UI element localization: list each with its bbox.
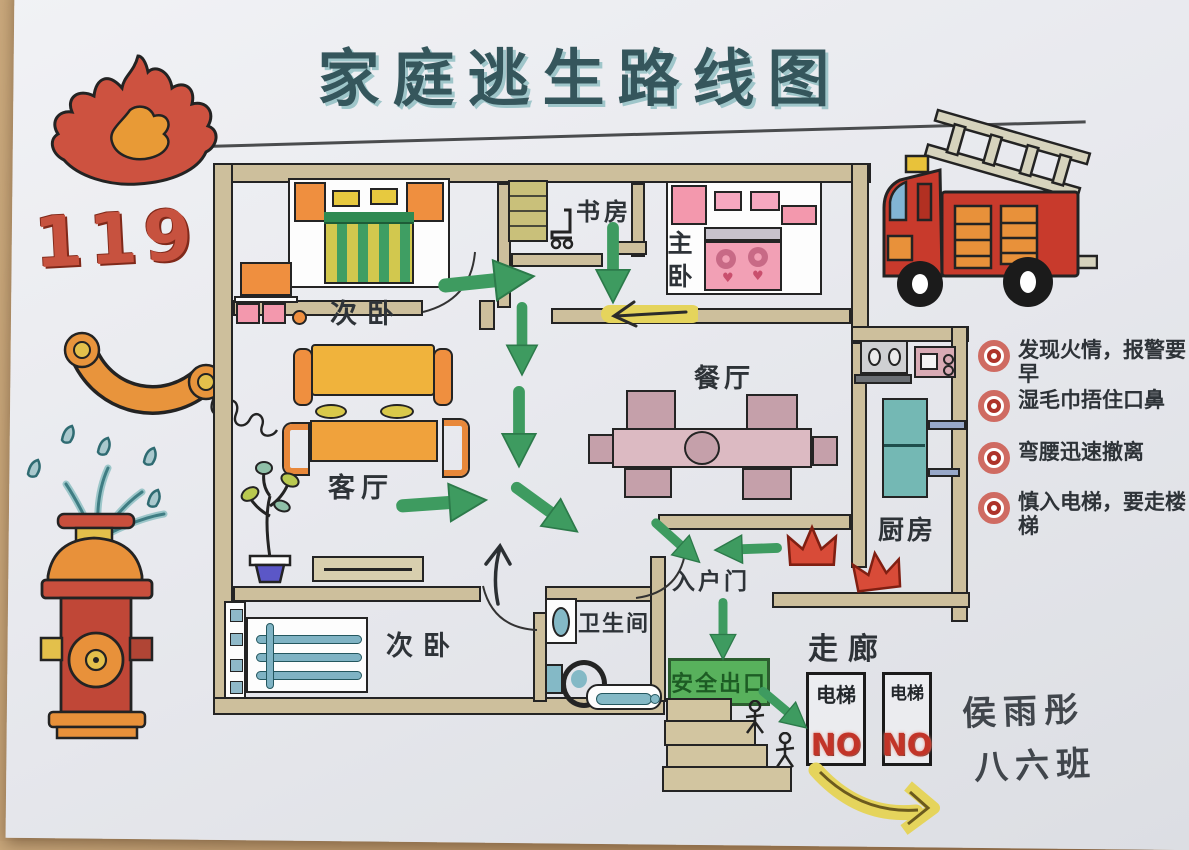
- dining-set-icon: [588, 390, 840, 502]
- tv-stand-line: [324, 568, 412, 571]
- headboard-square: [230, 633, 243, 646]
- drawer: [236, 303, 260, 324]
- headboard: [224, 601, 246, 699]
- headboard-square: [230, 609, 243, 622]
- flower: [748, 247, 768, 267]
- escape-arrow-up-thin: [470, 538, 524, 610]
- drawer: [262, 303, 286, 324]
- fridge-handle: [928, 468, 960, 477]
- fire-crown-icon: [784, 524, 840, 568]
- room-label-master-bedroom: 主卧: [660, 230, 696, 296]
- room-label-study: 书房: [576, 192, 632, 227]
- signature-name: 侯雨彤: [961, 682, 1086, 735]
- chair: [588, 434, 614, 464]
- page-title: 家庭逃生路线图: [240, 28, 920, 118]
- sofa-icon: [293, 344, 453, 406]
- safety-tip-text: 慎入电梯，要走楼梯: [1018, 490, 1188, 538]
- toilet-tank: [545, 664, 563, 694]
- pillow: [750, 191, 780, 211]
- yellow-arrow-curve: [804, 760, 944, 840]
- pillow: [370, 188, 398, 205]
- desk-chair-icon: [544, 208, 580, 250]
- escape-arrow-down: [700, 598, 746, 662]
- microwave-icon: [914, 346, 956, 378]
- fridge-icon: [882, 398, 928, 498]
- escape-arrow-right: [394, 475, 491, 531]
- sink-icon: [545, 598, 577, 644]
- emergency-number-119: 119: [32, 194, 200, 284]
- room-label-kitchen: 厨房: [878, 510, 936, 547]
- fire-crown-icon: [847, 545, 906, 597]
- flower: [716, 249, 736, 269]
- signature-class: 八六班: [973, 736, 1098, 789]
- elevator-no-label: NO: [811, 731, 862, 761]
- cushion: [315, 404, 347, 419]
- pillow-panel: [294, 182, 326, 222]
- bullet-ring-icon: [978, 442, 1010, 474]
- wall: [233, 586, 481, 602]
- heart: ♥: [722, 271, 734, 286]
- dresser-shelf: [234, 296, 298, 303]
- dresser-icon: [240, 262, 292, 296]
- tub-inner: [596, 693, 652, 705]
- stair-step: [666, 744, 768, 768]
- fire-truck-icon: [876, 104, 1098, 316]
- chair: [812, 436, 838, 466]
- bathtub-icon: [586, 684, 662, 710]
- pillow-panel: [781, 205, 817, 225]
- tv-stand-icon: [312, 556, 424, 582]
- heart: ♥: [752, 269, 764, 284]
- room-label-corridor: 走廊: [808, 624, 888, 668]
- potted-plant-icon: [238, 458, 302, 584]
- microwave-knob: [943, 365, 954, 376]
- room-label-entrance: 入户门: [672, 562, 750, 596]
- bullet-ring-icon: [978, 492, 1010, 524]
- escape-arrow-down: [498, 302, 546, 378]
- microwave-window: [920, 353, 938, 370]
- stair-step: [666, 698, 732, 722]
- microwave-knob: [943, 354, 954, 365]
- headboard-square: [230, 659, 243, 672]
- elevator-box: 电梯 NO: [882, 672, 932, 766]
- room-label-living-room: 客厅: [328, 466, 394, 505]
- bed-icon: [224, 601, 370, 699]
- yellow-arrow-left: [596, 292, 698, 336]
- elevator-label: 电梯: [816, 679, 856, 708]
- fridge-handle: [928, 420, 966, 430]
- chair: [746, 394, 798, 430]
- elevator-label: 电梯: [890, 679, 924, 704]
- safety-tips-list: 发现火情，报警要早 湿毛巾捂住口鼻 弯腰迅速撤离 慎入电梯，要走楼梯: [978, 326, 1189, 592]
- sofa-body: [311, 344, 435, 396]
- escape-arrow-down: [492, 386, 546, 470]
- bed-icon: [288, 178, 450, 288]
- fire-flame-icon: [38, 48, 238, 193]
- bullet-ring-icon: [978, 390, 1010, 422]
- ball-icon: [292, 310, 307, 325]
- room-label-dining-room: 餐厅: [694, 358, 754, 395]
- wall: [851, 163, 869, 338]
- tub-knob: [650, 694, 660, 704]
- sink-basin: [552, 607, 570, 637]
- stove-base: [854, 374, 912, 384]
- coffee-table-icon: [310, 420, 438, 462]
- headboard-square: [230, 681, 243, 694]
- blanket-wave: [324, 212, 414, 224]
- plate: [684, 431, 720, 465]
- armchair-icon: [444, 420, 468, 476]
- pillow: [332, 190, 360, 207]
- safety-tip-text: 弯腰迅速撤离: [1018, 440, 1188, 464]
- room-label-bedroom-top: 次卧: [330, 292, 404, 331]
- photo-of-drawing: 家庭逃生路线图 119: [0, 0, 1189, 841]
- burner: [868, 348, 881, 366]
- chair: [742, 468, 792, 500]
- stove-icon: [860, 340, 908, 374]
- safety-tip-text: 发现火情，报警要早: [1018, 338, 1188, 386]
- elevator-no-label: NO: [882, 731, 933, 761]
- blanket-wave: [704, 227, 782, 241]
- fire-hydrant-icon: [30, 510, 164, 742]
- burner: [888, 348, 901, 366]
- chair: [626, 390, 676, 430]
- bookshelf-icon: [508, 180, 548, 242]
- chair: [624, 468, 672, 498]
- safety-tip-text: 湿毛巾捂住口鼻: [1018, 388, 1188, 412]
- fridge-divider: [884, 444, 925, 447]
- cushion: [380, 404, 414, 419]
- bullet-ring-icon: [978, 340, 1010, 372]
- room-label-bedroom-bottom: 次卧: [386, 624, 460, 663]
- pillow: [714, 191, 742, 211]
- sofa-arm: [293, 348, 313, 406]
- blanket: ♥ ♥: [704, 241, 782, 291]
- toilet-seat: [571, 670, 587, 688]
- pillow-panel: [671, 185, 707, 225]
- sofa-arm: [433, 348, 453, 406]
- bed-body: [246, 617, 368, 693]
- room-label-bathroom: 卫生间: [578, 606, 650, 638]
- blanket-fold: [266, 623, 274, 689]
